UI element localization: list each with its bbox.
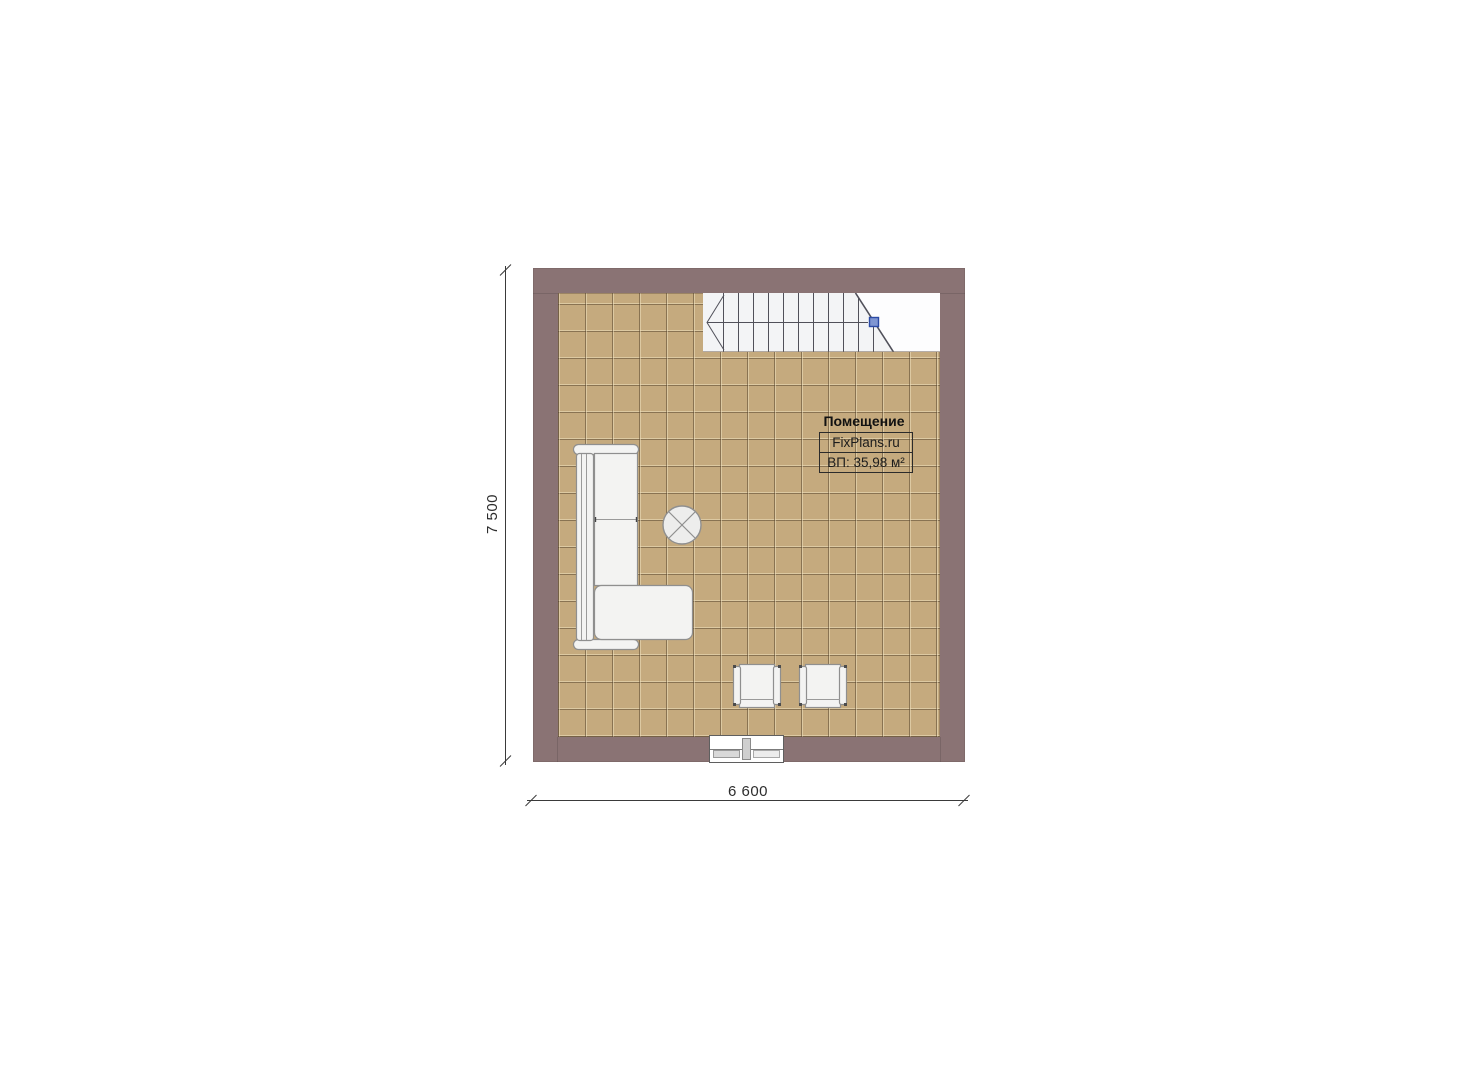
window-mullion — [742, 738, 751, 760]
round-table — [662, 505, 702, 545]
window-sash-left — [713, 750, 740, 758]
sofa — [566, 440, 696, 654]
window — [709, 735, 784, 763]
brand-label: FixPlans.ru — [819, 432, 913, 453]
sofa-backrest — [577, 454, 594, 641]
wall-joint — [557, 737, 558, 762]
dimension-vertical: 7 500 — [484, 265, 511, 767]
wall-joint — [940, 737, 941, 762]
area-label: ВП: 35,98 м² — [819, 452, 913, 473]
chair — [799, 665, 847, 708]
wall-joint — [940, 293, 965, 294]
chairs — [730, 659, 855, 713]
chair — [733, 665, 781, 708]
sofa-chaise — [595, 586, 693, 640]
dimension-vertical-label: 7 500 — [484, 494, 501, 534]
window-sash-right — [753, 750, 780, 758]
room-label: FixPlans.ru ВП: 35,98 м² — [819, 432, 913, 473]
room-label-title: Помещение — [806, 413, 922, 429]
dimension-horizontal: 6 600 — [526, 783, 970, 806]
wall-joint — [533, 293, 558, 294]
dimension-horizontal-label: 6 600 — [728, 783, 768, 800]
stair-level-marker — [870, 318, 879, 327]
staircase — [703, 293, 940, 352]
floor-plan-page: Помещение FixPlans.ru ВП: 35,98 м² 7 500… — [0, 0, 1474, 1080]
